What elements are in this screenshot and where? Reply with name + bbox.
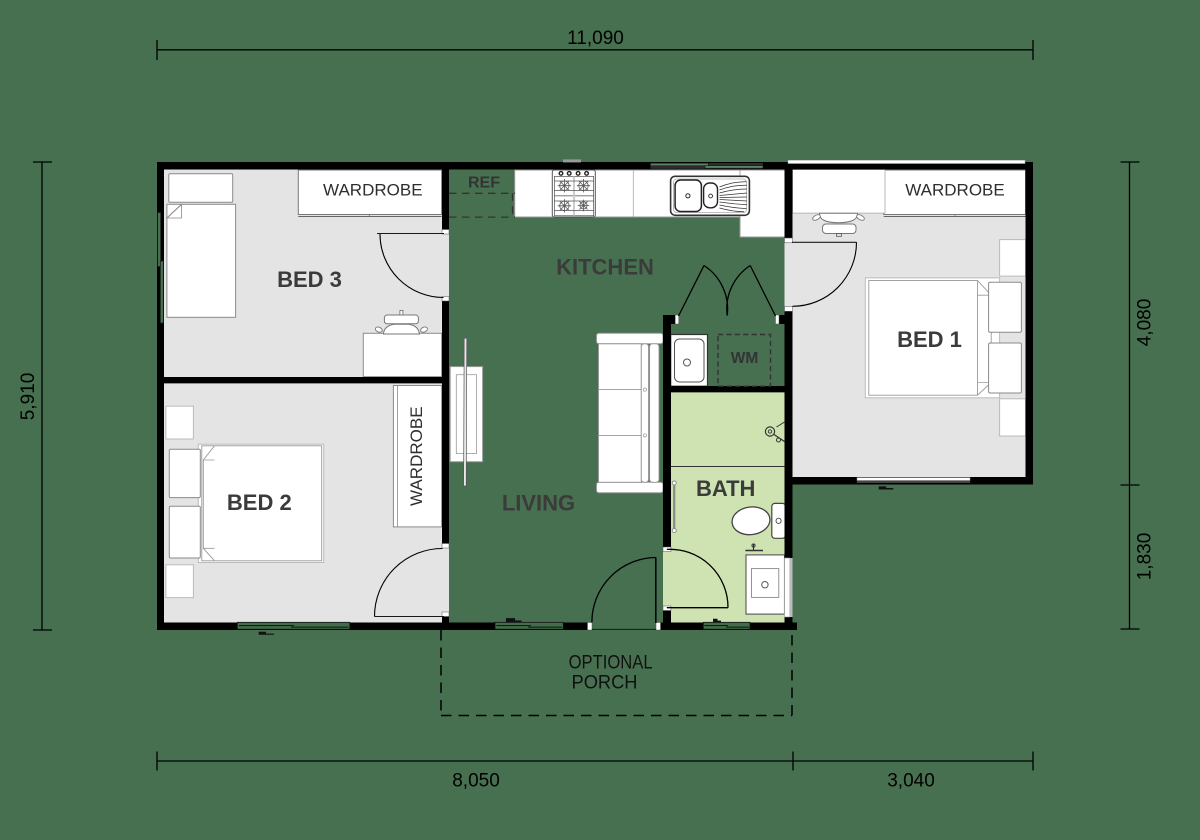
svg-text:WARDROBE: WARDROBE bbox=[905, 180, 1005, 199]
svg-text:4,080: 4,080 bbox=[1135, 299, 1156, 347]
svg-text:WM: WM bbox=[731, 350, 759, 367]
svg-text:LIVING: LIVING bbox=[502, 490, 575, 515]
svg-text:3,040: 3,040 bbox=[887, 771, 935, 792]
svg-text:BATH: BATH bbox=[696, 476, 755, 501]
svg-text:1,830: 1,830 bbox=[1135, 533, 1156, 581]
svg-text:5,910: 5,910 bbox=[18, 373, 39, 421]
svg-text:REF: REF bbox=[468, 175, 500, 192]
svg-text:OPTIONAL: OPTIONAL bbox=[569, 653, 653, 674]
svg-text:BED 2: BED 2 bbox=[227, 490, 292, 515]
svg-text:BED 1: BED 1 bbox=[897, 327, 962, 352]
svg-text:WARDROBE: WARDROBE bbox=[323, 180, 423, 199]
svg-text:11,090: 11,090 bbox=[567, 28, 624, 49]
svg-text:8,050: 8,050 bbox=[452, 771, 500, 792]
svg-text:KITCHEN: KITCHEN bbox=[556, 255, 654, 280]
svg-text:PORCH: PORCH bbox=[572, 672, 638, 693]
svg-text:BED 3: BED 3 bbox=[277, 267, 342, 292]
svg-text:WARDROBE: WARDROBE bbox=[407, 406, 426, 506]
